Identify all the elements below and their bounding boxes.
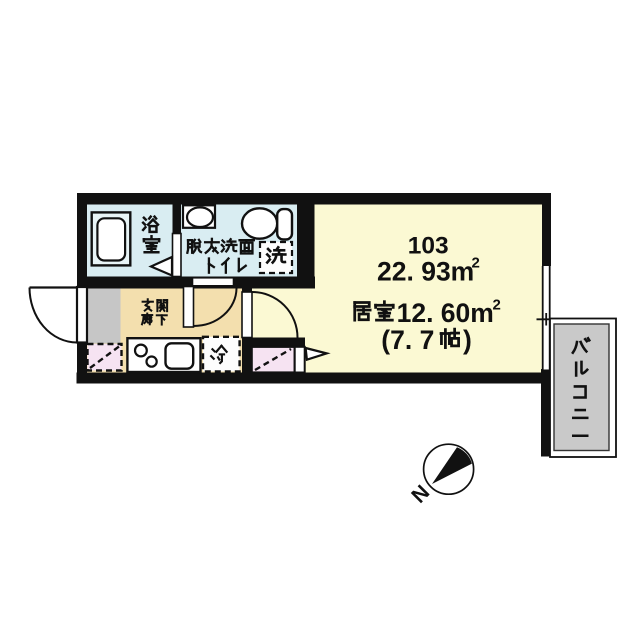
svg-text:12. 60m: 12. 60m xyxy=(397,298,494,328)
svg-text:22. 93m: 22. 93m xyxy=(377,257,474,287)
svg-text:2: 2 xyxy=(472,255,480,272)
svg-text:(7. 7: (7. 7 xyxy=(381,325,434,355)
svg-text:): ) xyxy=(463,325,472,355)
svg-text:2: 2 xyxy=(493,297,501,314)
svg-text:103: 103 xyxy=(408,232,449,259)
